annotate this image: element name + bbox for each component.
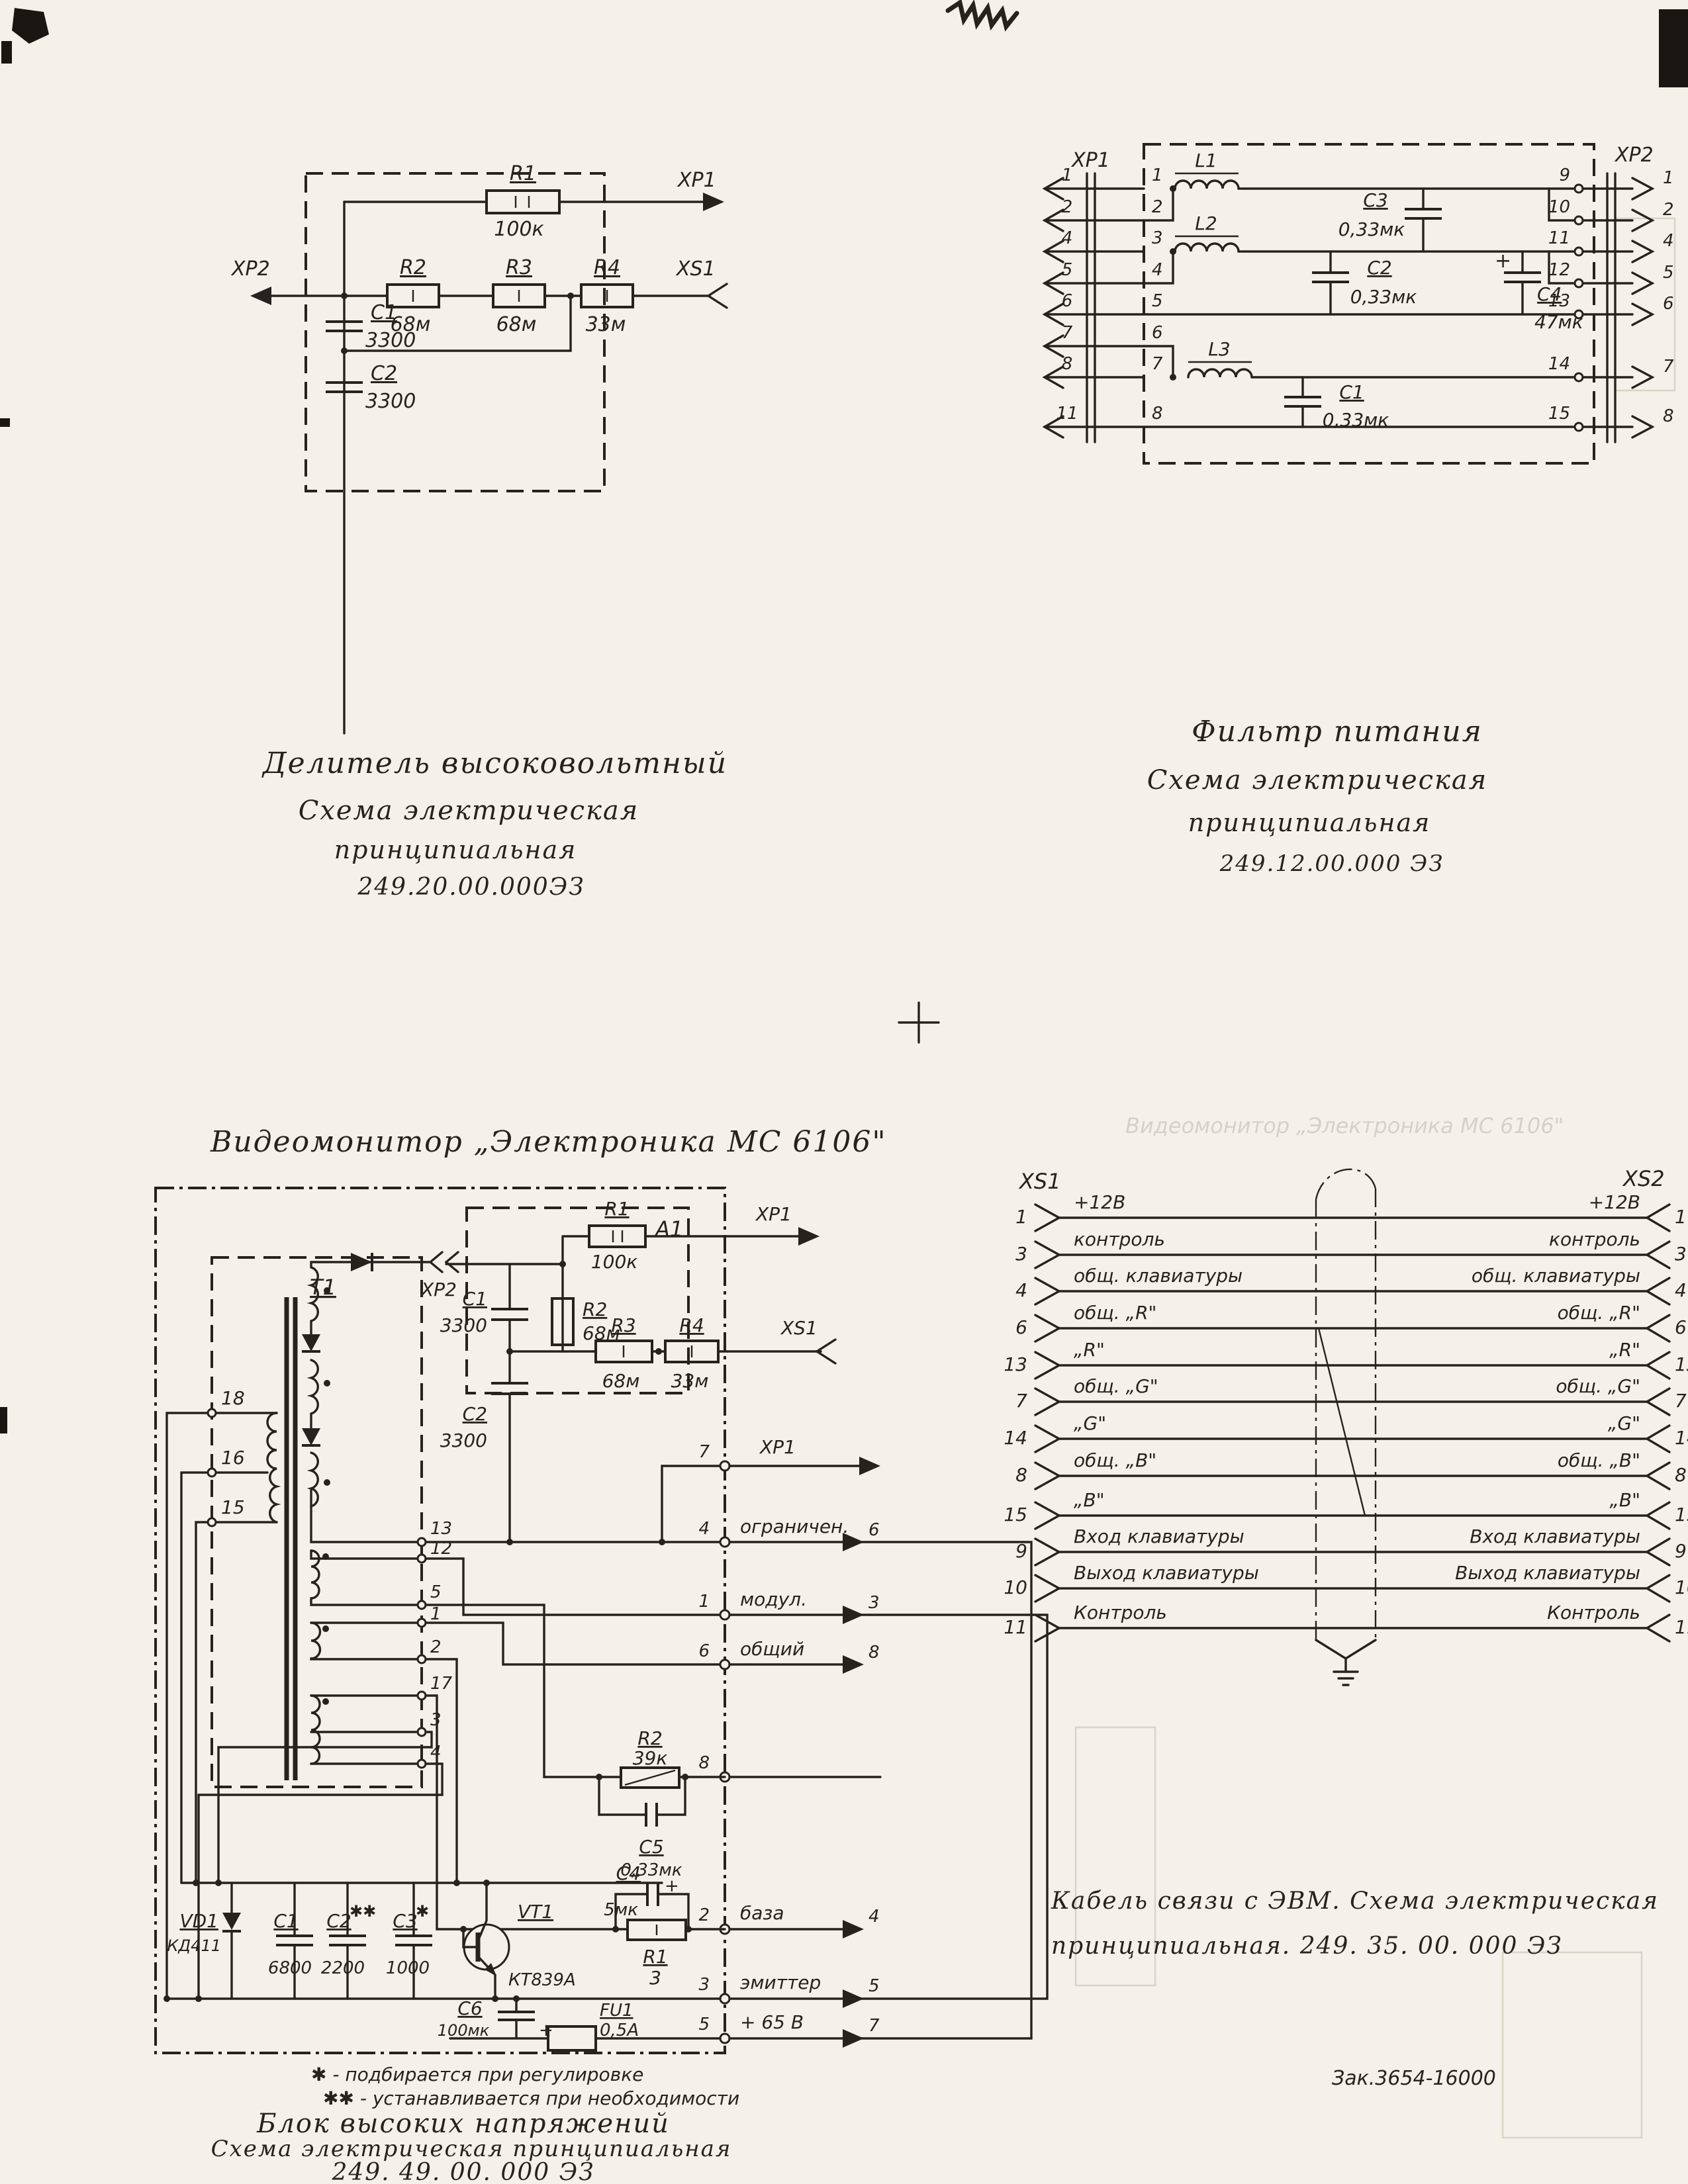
xs2-pin: 15 [1675, 1504, 1688, 1525]
r1-ref: R1 [643, 1946, 667, 1968]
c3-selection-mark: ✱ [416, 1902, 429, 1921]
scan-mark-left-edge [1, 41, 12, 64]
pin-circle [1575, 248, 1583, 255]
connector-label-xp1: XP1 [1070, 149, 1110, 172]
r2-value: 39к [633, 1747, 668, 1769]
signal-label-right: Выход клавиатуры [1455, 1562, 1640, 1584]
pin-socket [1647, 1463, 1669, 1489]
fu1-value: 0,5А [600, 2021, 639, 2040]
xp2-pin: 2 [1663, 200, 1674, 220]
capacitor-c5-symbol [646, 1803, 657, 1827]
divider-caption-line1: Делитель высоковольтный [261, 747, 727, 780]
signal-label-right: „В" [1609, 1489, 1640, 1511]
xp1-pin: 6 [1062, 291, 1073, 311]
r2-c5-wires [599, 1777, 725, 1815]
connector-label-xs1: XS1 [675, 257, 716, 281]
inner-pin: 9 [1559, 165, 1570, 185]
pin-circle [418, 1619, 426, 1627]
junction-dot [559, 1261, 566, 1267]
pin-socket [1647, 1502, 1669, 1529]
hv-caption-line1: Блок высоких напряжений [256, 2109, 670, 2139]
xs2-pin: 10 [1675, 1576, 1688, 1598]
xp2-rows: 9 10 11 12 13 14 15 1 2 4 5 6 7 8 [1548, 165, 1674, 437]
l3-ref: L3 [1208, 338, 1230, 360]
a1-c1-ref: C1 [463, 1288, 487, 1310]
schematic-drawing: Видеомонитор „Электроника МС 6106" XP1 R… [0, 0, 1688, 2184]
a1-label: A1 [654, 1216, 683, 1242]
vt1-type: КТ839А [508, 1970, 576, 1990]
a1-xp2-label: XP2 [420, 1279, 457, 1300]
a1-r1-symbol [589, 1226, 645, 1247]
signal-label: Вход клавиатуры [1074, 1525, 1244, 1547]
l1-ref: L1 [1195, 150, 1217, 171]
junction-dot [612, 1926, 619, 1933]
c2-ref: C2 [371, 362, 397, 385]
xs1-pin: 6 [1015, 1316, 1027, 1338]
xp1-pin: 7 [1062, 323, 1073, 343]
inner-pin: 8 [1152, 404, 1163, 424]
tap-circle [208, 1469, 216, 1477]
capacitor-c2-symbol [329, 1936, 366, 1945]
inner-pin: 13 [1548, 291, 1570, 311]
xp1-pin: 5 [1062, 260, 1073, 280]
r4-ref: R4 [594, 256, 620, 279]
pin-arrow [1035, 1575, 1059, 1602]
signal-label-right: „R" [1609, 1339, 1640, 1361]
border-pin-number: 1 [698, 1592, 710, 1612]
c3-value: 1000 [386, 1958, 430, 1978]
xs1-pin: 14 [1004, 1427, 1027, 1449]
border-pin-number: 6 [698, 1641, 710, 1661]
r2-adjust-arrow [625, 1770, 675, 1785]
scan-artifacts: Видеомонитор „Электроника МС 6106" [0, 3, 1688, 2138]
a1-r4-value: 33м [671, 1370, 709, 1392]
signal-label-right: „G" [1608, 1412, 1640, 1434]
pin-socket [1647, 1575, 1669, 1602]
pin-socket [1647, 1205, 1669, 1231]
inductor-l3-symbol [1188, 369, 1252, 377]
ext-arrow [859, 1457, 880, 1475]
border-pin-number: 4 [698, 1519, 710, 1539]
c3-value: 0,33мк [1338, 218, 1405, 240]
t1-primary-winding [267, 1413, 277, 1522]
order-number: Зак.3654-16000 [1332, 2067, 1496, 2090]
xp2-chevron [430, 1252, 442, 1272]
a1-xp1-label: XP1 [755, 1203, 792, 1225]
a1-divider-subblock: A1 XP2 XP1 R1 100к C1 3300 R2 68м R3 68м [420, 1198, 835, 1542]
secondary-leads [311, 1551, 422, 1764]
divider-caption-line2: Схема электрическая [299, 796, 639, 826]
ground-symbol [1334, 1672, 1358, 1685]
scan-mark-left-edge-3 [0, 1407, 7, 1433]
fu1-ref: FU1 [600, 2001, 633, 2021]
pin-arrow [1035, 1278, 1059, 1304]
junction-dot [655, 1348, 662, 1355]
xs1-pin: 13 [1004, 1353, 1027, 1375]
xp2-pin: 8 [1663, 406, 1674, 426]
pin-arrow [1632, 367, 1652, 388]
junction-dot [1170, 248, 1176, 255]
c2-value: 3300 [365, 390, 416, 413]
c6-ref: C6 [457, 1997, 482, 2019]
a1-r3-ref: R3 [611, 1314, 635, 1336]
border-pin-number: 2 [698, 1905, 710, 1925]
c2-selection-mark: ✱✱ [350, 1902, 376, 1921]
connector-label-xp2: XP2 [230, 257, 270, 281]
bleed-through-box-3 [1503, 1952, 1642, 2138]
shield-ground-lead [1316, 1640, 1376, 1672]
pin-circle [418, 1728, 426, 1736]
winding-polarity-dot [324, 1380, 330, 1387]
sec-pin: 3 [430, 1710, 442, 1730]
border-pin-number: 3 [698, 1975, 710, 1995]
tap-number: 16 [221, 1447, 245, 1469]
xs1-pin: 9 [1015, 1540, 1027, 1562]
pin-circle [1575, 216, 1583, 224]
footnote-double-asterisk: ✱✱ - устанавливается при необходимости [323, 2087, 739, 2109]
pin-arrow [1035, 1388, 1059, 1415]
tap-number: 18 [221, 1387, 245, 1409]
divider-caption-doc-number: 249.20.00.000ЭЗ [357, 874, 585, 901]
pin-arrow [1035, 1463, 1059, 1489]
ext-arrow [843, 1655, 864, 1674]
xp2-pin: 6 [1663, 294, 1674, 314]
capacitor-c1-symbol [1284, 397, 1321, 406]
scan-mark-left-edge-2 [0, 418, 10, 427]
xp1-rows: 1 2 4 5 6 7 8 11 1 2 3 4 5 6 7 8 [1045, 165, 1163, 437]
fig-cable: XS1 XS2 [1004, 1166, 1688, 1960]
xs2-pin: 13 [1675, 1353, 1688, 1375]
xp1-pin: 1 [1062, 165, 1073, 185]
pin-socket [1647, 1426, 1669, 1452]
a1-r3-value: 68м [602, 1370, 640, 1392]
c2-value: 0,33мк [1350, 286, 1417, 308]
transformer-core [287, 1297, 295, 1780]
signal-label-ogranichen: ограничен. [740, 1516, 849, 1537]
xs2-pin: 14 [1675, 1427, 1688, 1449]
sec-pin: 5 [430, 1582, 442, 1602]
c6-polarity: + [539, 2021, 553, 2040]
c2-ref: C2 [1367, 257, 1391, 279]
cable-caption-line1: Кабель связи с ЭВМ. Схема электрическая [1051, 1888, 1659, 1915]
hv-caption-doc-number: 249. 49. 00. 000 ЭЗ [331, 2159, 594, 2184]
xs1-pin: 7 [1015, 1390, 1027, 1412]
pin-arrow [1035, 1352, 1059, 1379]
capacitor-c6-symbol [498, 2012, 535, 2020]
footnote-asterisk: ✱ - подбирается при регулировке [311, 2064, 643, 2085]
capacitor-c4-symbol [647, 1882, 658, 1906]
ext-arrow [843, 1606, 864, 1624]
xs1-chevron [708, 284, 727, 308]
signal-label-right: общ. клавиатуры [1472, 1265, 1640, 1287]
xs1-pin: 4 [1015, 1279, 1027, 1301]
hv-diode-symbol [302, 1334, 320, 1351]
pin-arrow [1035, 1315, 1059, 1342]
border-pin [720, 1537, 729, 1547]
fuse-fu1-symbol [548, 2026, 596, 2050]
junction-dot [460, 1926, 467, 1933]
filter-caption-line1: Фильтр питания [1192, 715, 1483, 749]
a1-r1-value: 100к [591, 1251, 637, 1273]
connector-label-xp1: XP1 [677, 169, 716, 192]
pin-circle [418, 1692, 426, 1700]
pin-socket [1647, 1539, 1669, 1565]
junction-dot [1170, 185, 1176, 192]
border-pin [720, 1461, 729, 1471]
c2-ref: C2 [326, 1910, 351, 1932]
l2-ref: L2 [1195, 212, 1217, 234]
xp1-connector-body [1087, 173, 1095, 442]
r1-value: 3 [649, 1967, 661, 1989]
a1-r2-ref: R2 [583, 1298, 607, 1320]
capacitor-c1-symbol [276, 1936, 313, 1945]
divider-caption-line3: принципиальная [334, 835, 577, 864]
signal-label: общ. „R" [1074, 1302, 1156, 1324]
c1-value: 3300 [365, 329, 416, 352]
signal-label-right: Вход клавиатуры [1470, 1525, 1640, 1547]
ext-pin-number: 8 [868, 1643, 880, 1662]
ext-pin-number: 3 [868, 1593, 880, 1613]
border-pin [720, 2034, 729, 2043]
fig-filter: XP1 XP2 1 2 4 5 6 7 8 11 1 2 3 4 5 [1045, 144, 1674, 877]
winding-polarity-dot [324, 1287, 330, 1294]
a1-c2-value: 3300 [440, 1430, 487, 1451]
sec-pin: 1 [430, 1604, 442, 1624]
signal-label-right: общ. „G" [1556, 1375, 1640, 1397]
inductors: L1 L2 L3 [1175, 150, 1252, 377]
inductor-l2-symbol [1175, 244, 1239, 251]
xs2-pin: 1 [1675, 1206, 1687, 1228]
ext-arrow [843, 1920, 864, 1938]
xp1-pin: 4 [1062, 228, 1073, 248]
xp2-pin: 7 [1663, 357, 1674, 377]
pin-arrow [1632, 178, 1652, 199]
xs1-pin: 8 [1015, 1464, 1027, 1486]
signal-label: контроль [1074, 1228, 1165, 1250]
tap-circle [208, 1518, 216, 1526]
xp1-pin: 8 [1062, 354, 1073, 374]
signal-label-65v: + 65 В [740, 2011, 804, 2033]
c1-value: 6800 [268, 1958, 312, 1978]
signal-label-right: общ. „R" [1558, 1302, 1640, 1324]
t1-hv-winding [311, 1267, 318, 1506]
bleed-through-title: Видеомонитор „Электроника МС 6106" [1125, 1113, 1564, 1138]
pin-arrow [1035, 1426, 1059, 1452]
border-pin-number: 8 [698, 1753, 710, 1773]
junction-dot [659, 1539, 665, 1545]
xs2-pin: 3 [1675, 1243, 1687, 1265]
signal-label: „G" [1074, 1412, 1106, 1434]
a1-r4-ref: R4 [679, 1314, 704, 1336]
pin-arrow [1632, 273, 1652, 294]
sec-pin: 2 [430, 1637, 442, 1657]
signal-label-right: общ. „В" [1558, 1449, 1640, 1471]
signal-label-obshchiy: общий [740, 1638, 804, 1660]
pin-circle [1575, 310, 1583, 318]
filter-caption-doc-number: 249.12.00.000 ЭЗ [1219, 850, 1444, 877]
ext-pin-number: 7 [868, 2016, 880, 2036]
c6-fu1-wires [450, 1999, 720, 2038]
inner-pin: 4 [1152, 260, 1163, 280]
pin-socket [1647, 1388, 1669, 1415]
junction-dot [506, 1348, 513, 1355]
vd1-ref: VD1 [179, 1910, 218, 1932]
connector-label-xs2: XS2 [1622, 1166, 1665, 1191]
pin-circle [418, 1538, 426, 1546]
signal-label: „R" [1074, 1339, 1105, 1361]
signal-label: Контроль [1074, 1602, 1167, 1623]
signal-label-right: Контроль [1547, 1602, 1640, 1623]
capacitor-c3-symbol [1405, 209, 1442, 218]
xp2-connector-body [1607, 173, 1615, 442]
signal-label-right: контроль [1549, 1228, 1640, 1250]
r2-ref: R2 [400, 256, 426, 279]
border-pin [720, 1660, 729, 1669]
junction-dot [596, 1774, 602, 1780]
pin-socket [1647, 1278, 1669, 1304]
connector-label-xp2: XP2 [1614, 144, 1654, 167]
pin-arrow [1632, 416, 1652, 437]
hv-caption-line2: Схема электрическая принципиальная [211, 2136, 732, 2162]
pin-arrow [1632, 304, 1652, 325]
c1-ref: C1 [273, 1910, 298, 1932]
xs2-pin: 8 [1675, 1464, 1687, 1486]
border-pin [720, 1994, 729, 2003]
border-pin [720, 1610, 729, 1619]
c4-polarity: + [665, 1876, 679, 1896]
c4-value: 5мк [604, 1900, 638, 1920]
hv-bottom-components: VD1 КД411 C1 6800 ✱✱ C2 2200 ✱ C3 1000 V… [167, 1727, 725, 2050]
a1-r1-ref: R1 [604, 1198, 629, 1220]
fig-hv-block: Видеомонитор „Электроника МС 6106" T1 18… [156, 1125, 1047, 2184]
cable-shield [1316, 1169, 1376, 1640]
c4-ref: C4 [616, 1862, 641, 1884]
pin-arrow [1632, 210, 1652, 231]
filter-capacitors: C3 0,33мк C2 0,33мк + C4 47мк C1 0,33мк [1284, 189, 1583, 431]
inner-pin: 3 [1152, 228, 1163, 248]
xs2-pin: 11 [1675, 1616, 1688, 1638]
ext-pin-number: 4 [868, 1907, 880, 1927]
junction-dot [685, 1926, 692, 1933]
winding-polarity-dot [324, 1479, 330, 1486]
pin-circle [1575, 373, 1583, 381]
signal-label-modul: модул. [740, 1588, 807, 1610]
scan-blot-top-left [12, 8, 49, 44]
junction-dot [341, 347, 348, 354]
winding-polarity-dot [322, 1625, 329, 1632]
pin-circle [1575, 279, 1583, 287]
external-wires [729, 1466, 1047, 2038]
resistor-r1-ticks [516, 196, 529, 208]
junction-dot [506, 1539, 513, 1545]
ext-pin-number: 6 [868, 1520, 880, 1540]
inner-pin: 15 [1548, 404, 1570, 424]
junction-dot [1170, 374, 1176, 381]
inner-pin: 10 [1548, 197, 1570, 217]
xs1-pin: 3 [1015, 1243, 1027, 1265]
hv-winding-leads [311, 1262, 429, 1542]
xp1-arrow [703, 193, 724, 211]
rectifier-diode-symbol [351, 1253, 372, 1271]
inductor-l1-symbol [1175, 181, 1239, 189]
fig-divider: XP1 R1 100к XP2 R2 68м R3 68м R4 33м XS1… [230, 162, 727, 901]
border-pin-number: 7 [698, 1442, 710, 1462]
pin-circle [1575, 423, 1583, 431]
vd1-type: КД411 [167, 1936, 221, 1955]
xs1-pin: 11 [1004, 1616, 1027, 1638]
xp1-pin: 11 [1056, 404, 1078, 424]
signal-label: +12В [1074, 1191, 1125, 1213]
diode-vd1-symbol [222, 1913, 241, 1930]
r3-ref: R3 [506, 256, 532, 279]
inner-pin: 1 [1152, 165, 1163, 185]
a1-c1-value: 3300 [440, 1314, 487, 1336]
tap-number: 15 [221, 1496, 245, 1518]
scan-scribble-top [948, 3, 1017, 26]
pin-circle [418, 1601, 426, 1609]
pin-socket [1647, 1352, 1669, 1379]
tap-circle [208, 1409, 216, 1417]
signal-label-right: +12В [1589, 1191, 1640, 1213]
c6-value: 100мк [438, 2021, 490, 2040]
xp2-pin: 5 [1663, 263, 1674, 283]
junction-dot [492, 1995, 498, 2002]
monitor-title: Видеомонитор „Электроника МС 6106" [210, 1125, 887, 1159]
xs2-pin: 4 [1675, 1279, 1687, 1301]
r1-ref: R1 [510, 162, 536, 185]
xp2-pin: 1 [1663, 168, 1674, 188]
c2-value: 2200 [321, 1958, 365, 1978]
c1-ref: C1 [371, 301, 397, 324]
ext-arrow [843, 1533, 864, 1551]
c3-ref: C3 [393, 1910, 417, 1932]
signal-label: общ. „В" [1074, 1449, 1156, 1471]
pin-socket [1647, 1315, 1669, 1342]
winding-polarity-dot [322, 1698, 329, 1705]
inner-pin: 7 [1152, 354, 1163, 374]
junction-dot [483, 1880, 490, 1886]
pin-arrow [1035, 1502, 1059, 1529]
a1-xp1-arrow [798, 1227, 820, 1246]
xp1-pin: 2 [1062, 197, 1073, 217]
c3-ref: C3 [1363, 189, 1387, 211]
cable-caption-line2: принципиальная. 249. 35. 00. 000 ЭЗ [1051, 1933, 1563, 1960]
inner-pin: 14 [1548, 354, 1570, 374]
filter-caption-line3: принципиальная [1188, 808, 1431, 837]
pin-arrow [1035, 1242, 1059, 1268]
xs2-pin: 9 [1675, 1540, 1687, 1562]
pin-circle [1575, 185, 1583, 193]
xp2-pin: 4 [1663, 231, 1674, 251]
xs1-pin: 1 [1015, 1206, 1027, 1228]
signal-label: общ. „G" [1074, 1375, 1158, 1397]
scan-bar-top-right [1659, 9, 1688, 87]
inner-pin: 11 [1548, 228, 1570, 248]
pin-socket [1647, 1615, 1669, 1641]
capacitor-c3-symbol [395, 1936, 432, 1945]
resistor-r1-symbol [487, 191, 559, 213]
pin-circle [418, 1760, 426, 1768]
cable-rows: 1 3 4 6 13 7 14 8 15 9 10 11 +12В контро… [1004, 1191, 1688, 1641]
inner-pin: 6 [1152, 323, 1163, 343]
junction-dot [567, 293, 574, 299]
ext-pin-number: 5 [868, 1976, 880, 1996]
c4-polarity: + [1495, 250, 1511, 273]
pin-arrow [1632, 241, 1652, 262]
hv-diode-symbol [302, 1428, 320, 1445]
a1-xs1-label: XS1 [780, 1317, 818, 1339]
r2-ref: R2 [637, 1727, 662, 1749]
